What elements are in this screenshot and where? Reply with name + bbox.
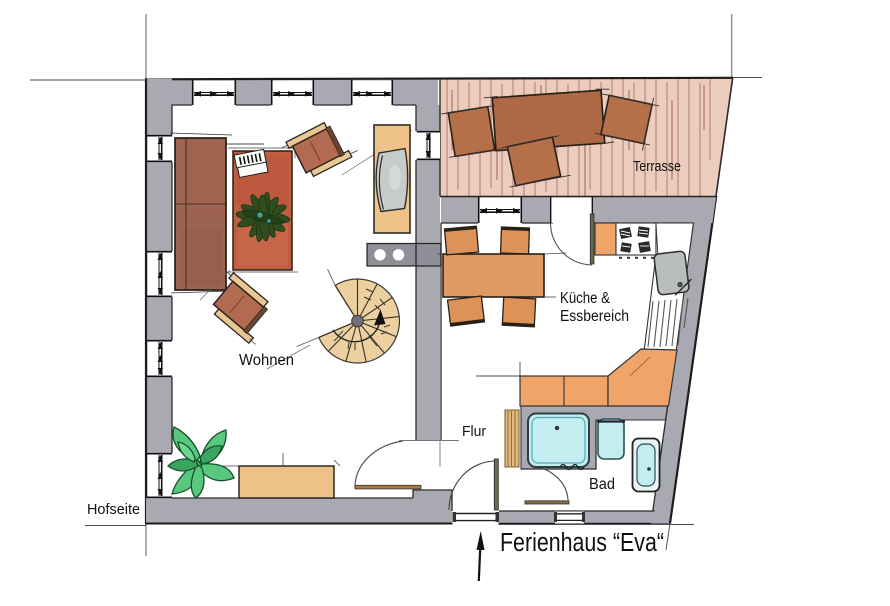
svg-text:Wohnen: Wohnen xyxy=(239,352,294,369)
svg-text:Küche &: Küche & xyxy=(560,290,611,307)
svg-text:Terrasse: Terrasse xyxy=(633,158,681,175)
svg-text:Bad: Bad xyxy=(589,476,615,493)
svg-text:Ferienhaus “Eva“: Ferienhaus “Eva“ xyxy=(500,529,664,557)
svg-text:Hofseite: Hofseite xyxy=(87,502,140,518)
svg-text:Essbereich: Essbereich xyxy=(560,308,629,325)
svg-text:Flur: Flur xyxy=(462,423,486,440)
